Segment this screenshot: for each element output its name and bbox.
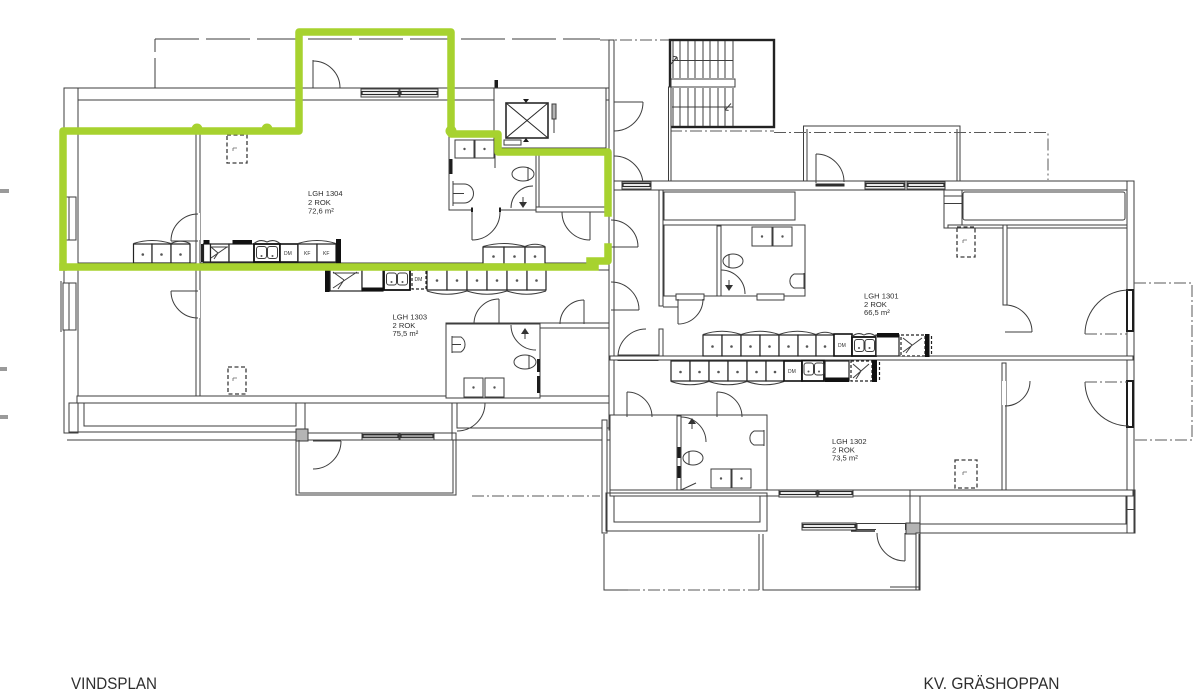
svg-text:KF: KF — [323, 251, 329, 257]
svg-text:DM: DM — [284, 251, 292, 257]
svg-text:72,6 m²: 72,6 m² — [308, 207, 334, 216]
svg-text:LGH 1304: LGH 1304 — [308, 189, 343, 198]
svg-text:DM: DM — [415, 277, 423, 283]
svg-text:VINDSPLAN: VINDSPLAN — [71, 674, 157, 693]
svg-text:DM: DM — [838, 343, 846, 349]
svg-text:73,5 m²: 73,5 m² — [832, 454, 858, 463]
svg-text:KF: KF — [304, 251, 310, 257]
svg-text:75,5 m²: 75,5 m² — [393, 329, 419, 338]
svg-text:DM: DM — [788, 369, 796, 375]
svg-text:KV. GRÄSHOPPAN: KV. GRÄSHOPPAN — [924, 674, 1060, 693]
svg-text:66,5 m²: 66,5 m² — [864, 308, 890, 317]
